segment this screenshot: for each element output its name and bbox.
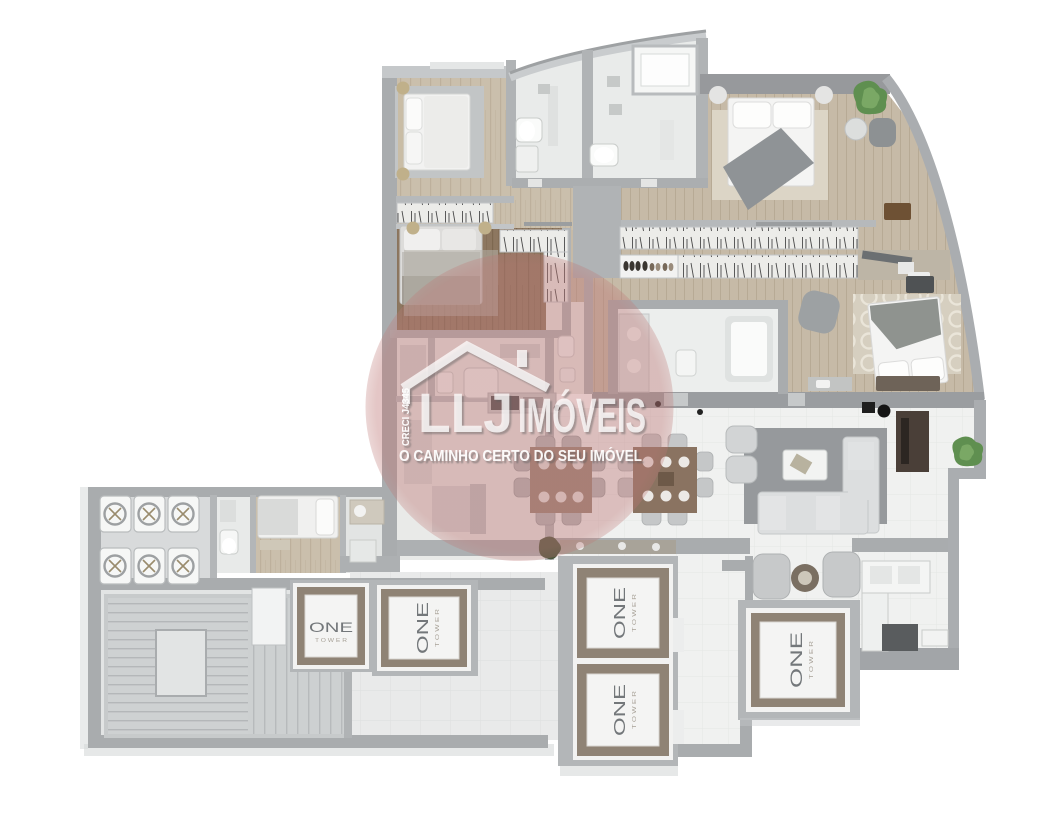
svg-text:ONE: ONE bbox=[612, 587, 629, 639]
svg-text:LLJ: LLJ bbox=[418, 381, 513, 444]
svg-text:T O W E R: T O W E R bbox=[435, 609, 441, 647]
svg-text:ONE: ONE bbox=[787, 632, 806, 688]
svg-text:ONE: ONE bbox=[309, 619, 353, 635]
svg-text:O CAMINHO CERTO DO SEU IMÓVEL: O CAMINHO CERTO DO SEU IMÓVEL bbox=[399, 447, 642, 465]
svg-text:CRECI J4345: CRECI J4345 bbox=[400, 388, 412, 446]
svg-text:ONE: ONE bbox=[415, 602, 432, 654]
svg-text:IMÓVEIS: IMÓVEIS bbox=[518, 388, 646, 443]
svg-text:T O W E R: T O W E R bbox=[632, 691, 638, 729]
svg-text:ONE: ONE bbox=[612, 684, 629, 736]
svg-text:T O W E R: T O W E R bbox=[315, 638, 348, 644]
svg-text:T O W E R: T O W E R bbox=[632, 594, 638, 632]
svg-text:T O W E R: T O W E R bbox=[809, 641, 815, 679]
